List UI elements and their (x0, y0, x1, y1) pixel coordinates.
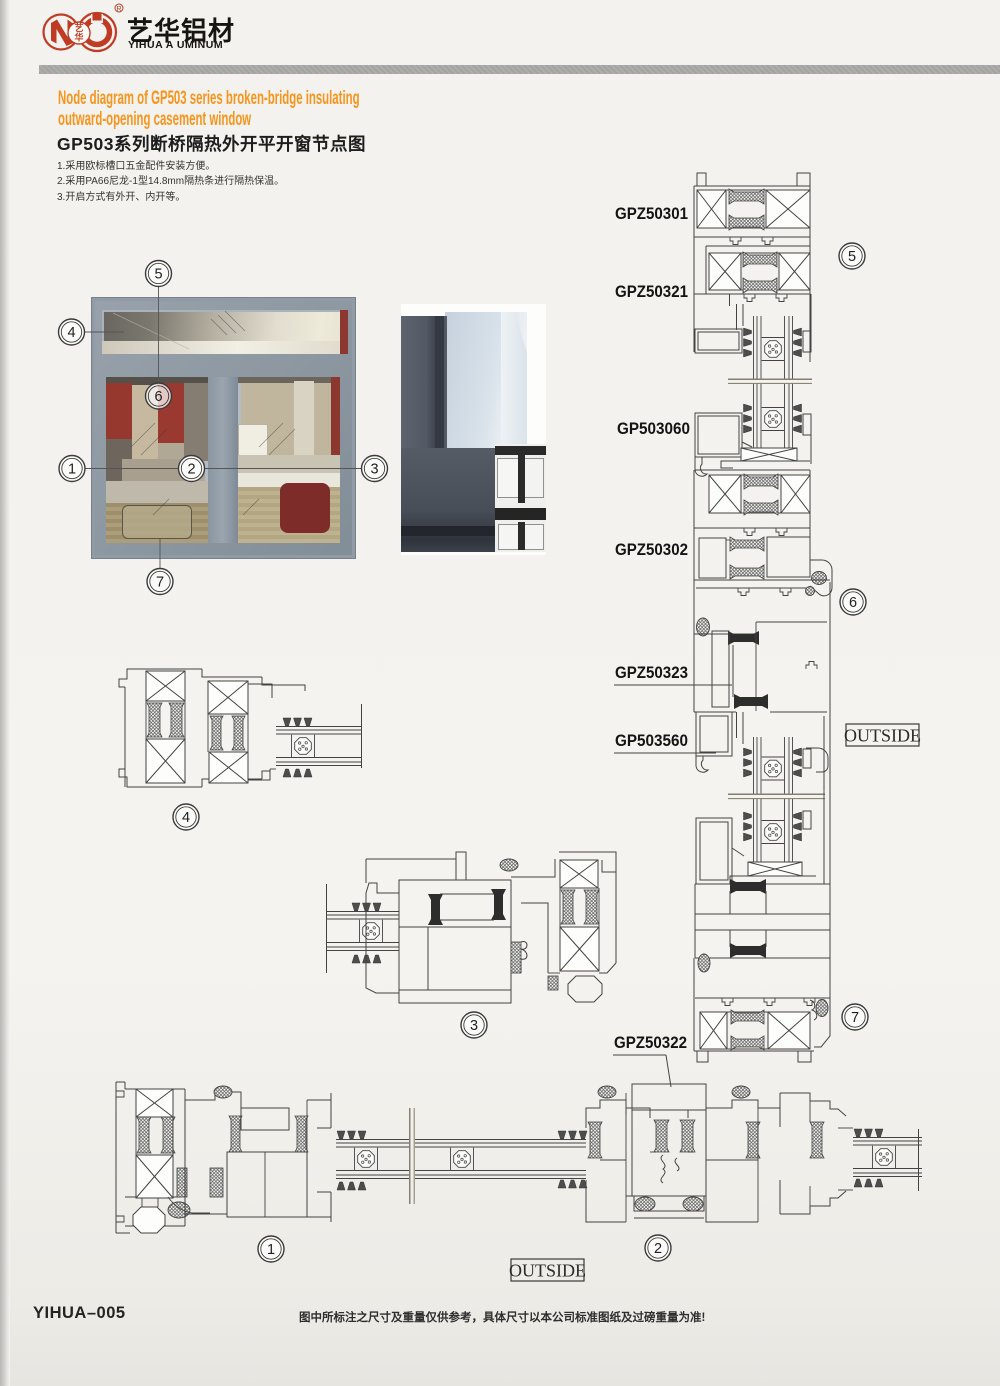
svg-text:GP503060: GP503060 (617, 419, 690, 438)
svg-text:4: 4 (67, 325, 75, 341)
svg-text:1: 1 (267, 1242, 275, 1258)
svg-text:2: 2 (654, 1241, 662, 1257)
svg-text:4: 4 (182, 810, 190, 826)
svg-text:6: 6 (849, 595, 857, 611)
svg-text:GPZ50323: GPZ50323 (615, 663, 688, 682)
svg-text:OUTSIDE: OUTSIDE (509, 1261, 586, 1281)
svg-text:5: 5 (154, 267, 162, 283)
svg-text:3: 3 (370, 462, 378, 478)
svg-text:GPZ50301: GPZ50301 (615, 204, 688, 223)
svg-text:GP503560: GP503560 (615, 731, 688, 750)
svg-text:7: 7 (156, 575, 164, 591)
svg-text:2: 2 (187, 462, 195, 478)
svg-text:1: 1 (68, 462, 76, 478)
svg-text:7: 7 (851, 1010, 859, 1026)
svg-text:5: 5 (848, 249, 856, 265)
svg-text:3: 3 (470, 1018, 478, 1034)
svg-text:OUTSIDE: OUTSIDE (844, 726, 921, 746)
svg-text:GPZ50322: GPZ50322 (614, 1033, 687, 1052)
svg-text:GPZ50302: GPZ50302 (615, 540, 688, 559)
svg-text:GPZ50321: GPZ50321 (615, 282, 688, 301)
svg-text:6: 6 (154, 389, 162, 405)
